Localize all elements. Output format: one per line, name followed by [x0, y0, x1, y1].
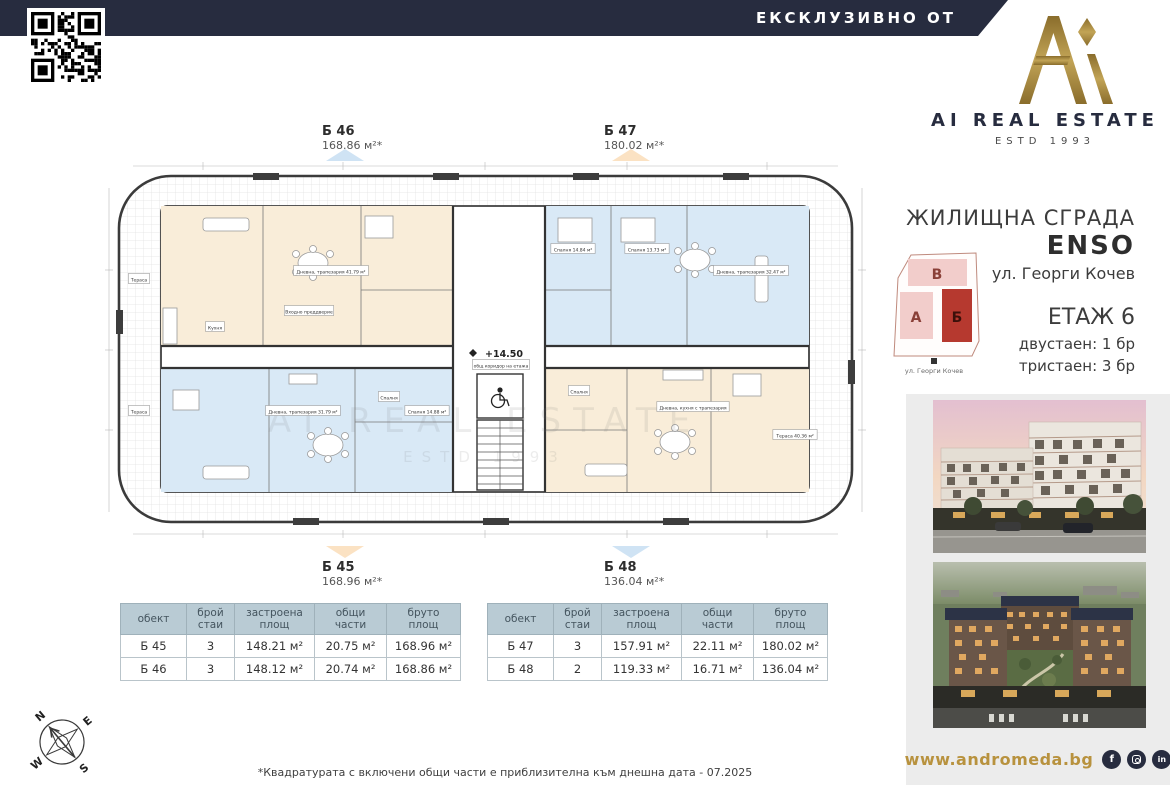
room-label: Дневна, трапезария 32.47 м² — [717, 270, 786, 276]
room-label: Дневна, трапезария 31.79 м² — [269, 410, 338, 416]
table-cell: 136.04 м² — [754, 658, 828, 681]
exclusive-banner-label: ЕКСКЛУЗИВНО ОТ — [756, 9, 956, 27]
apartment-marker-b45 — [326, 546, 364, 558]
room-label: Входно преддверие — [285, 310, 333, 316]
level-label: +14.50 — [485, 349, 523, 360]
table-header-cell: бруто площ — [387, 604, 461, 635]
table-cell: 3 — [187, 635, 235, 658]
spec-table-left: обектброй стаизастроена площобщи частибр… — [120, 603, 461, 681]
room-label: Спалня — [380, 396, 398, 402]
table-cell: 168.96 м² — [387, 635, 461, 658]
table-cell: 20.74 м² — [315, 658, 387, 681]
table-header-cell: застроена площ — [602, 604, 682, 635]
room-label: Спалня 14.84 м² — [554, 248, 593, 254]
compass-north: N — [33, 708, 48, 724]
qr-code-pattern — [31, 12, 101, 82]
apartment-label-b45: Б 45 168.96 м²* — [322, 560, 442, 588]
apartment-marker-b47 — [612, 149, 650, 161]
apartment-label-b46: Б 46 168.86 м²* — [322, 124, 442, 152]
room-label: Кухня — [208, 326, 222, 332]
table-cell: Б 47 — [488, 635, 554, 658]
apartment-marker-b46 — [326, 149, 364, 161]
qr-code — [27, 8, 105, 86]
table-cell: 2 — [554, 658, 602, 681]
apartment-area: 168.96 м²* — [322, 575, 442, 588]
table-header-cell: общи части — [315, 604, 387, 635]
spec-table-right: обектброй стаизастроена площобщи частибр… — [487, 603, 828, 681]
site-map-block-b-label: Б — [952, 310, 963, 326]
room-label: Дневна, трапезария 41.79 м² — [297, 270, 366, 276]
table-header-cell: брой стаи — [187, 604, 235, 635]
room-label: Спалня 14.88 м² — [408, 410, 447, 416]
table-cell: 20.75 м² — [315, 635, 387, 658]
brand-estd: ESTD 1993 — [930, 136, 1160, 147]
table-cell: 3 — [187, 658, 235, 681]
table-row: Б 463148.12 м²20.74 м²168.86 м² — [121, 658, 461, 681]
table-header-cell: обект — [488, 604, 554, 635]
table-cell: 148.12 м² — [235, 658, 315, 681]
apartment-id: Б 45 — [322, 560, 442, 575]
table-header-cell: бруто площ — [754, 604, 828, 635]
room-label: Спалня 13.73 м² — [628, 248, 667, 254]
exclusive-banner: ЕКСКЛУЗИВНО ОТ — [0, 0, 1008, 36]
table-cell: 16.71 м² — [682, 658, 754, 681]
table-header-cell: брой стаи — [554, 604, 602, 635]
table-cell: Б 48 — [488, 658, 554, 681]
site-map: В А Б ул. Георги Кочев — [878, 242, 988, 376]
apartment-area: 136.04 м²* — [604, 575, 724, 588]
table-row: Б 473157.91 м²22.11 м²180.02 м² — [488, 635, 828, 658]
apartment-id: Б 48 — [604, 560, 724, 575]
apartment-id: Б 47 — [604, 124, 724, 139]
compass-east: E — [81, 714, 95, 729]
facebook-icon[interactable]: f — [1102, 750, 1121, 769]
table-cell: Б 46 — [121, 658, 187, 681]
table-cell: Б 45 — [121, 635, 187, 658]
room-label: Спалня — [570, 390, 588, 396]
compass-west: W — [28, 755, 46, 773]
brochure-page: { "colors": { "navy": "#272c3f", "gold":… — [0, 0, 1170, 785]
site-map-block-v-label: В — [932, 267, 943, 283]
site-map-entrance-icon — [931, 358, 937, 364]
table-row: Б 453148.21 м²20.75 м²168.96 м² — [121, 635, 461, 658]
floor-plan: +14.50 AI REAL ESTATE EST — [103, 160, 868, 538]
room-label: Тераса — [130, 410, 148, 416]
apartment-label-b48: Б 48 136.04 м²* — [604, 560, 724, 588]
compass-icon: N E S W — [18, 698, 106, 785]
instagram-icon[interactable] — [1127, 750, 1146, 769]
table-cell: 168.86 м² — [387, 658, 461, 681]
table-cell: 157.91 м² — [602, 635, 682, 658]
table-row: Б 482119.33 м²16.71 м²136.04 м² — [488, 658, 828, 681]
apartment-id: Б 46 — [322, 124, 442, 139]
compass-south: S — [77, 761, 91, 776]
site-map-street-label: ул. Георги Кочев — [905, 367, 963, 375]
table-header-cell: общи части — [682, 604, 754, 635]
room-label: Тераса — [130, 278, 148, 284]
table-cell: 148.21 м² — [235, 635, 315, 658]
building-type-label: ЖИЛИЩНА СГРАДА — [860, 206, 1135, 230]
aerial-courtyard-render-photo — [933, 562, 1146, 728]
table-header-cell: застроена площ — [235, 604, 315, 635]
footer: www.andromeda.bg f in — [906, 750, 1170, 769]
apartment-label-b47: Б 47 180.02 м²* — [604, 124, 724, 152]
table-cell: 119.33 м² — [602, 658, 682, 681]
table-cell: 3 — [554, 635, 602, 658]
building-render-dusk-photo — [933, 400, 1146, 553]
ai-real-estate-logo-icon — [975, 4, 1125, 106]
room-label: Тераса 40.36 м² — [775, 434, 814, 440]
area-footnote: *Квадратурата с включени общи части е пр… — [150, 766, 860, 779]
apartment-marker-b48 — [612, 546, 650, 558]
website-link[interactable]: www.andromeda.bg — [905, 750, 1094, 769]
site-map-block-a-label: А — [911, 310, 922, 326]
brand-name: AI REAL ESTATE — [930, 110, 1160, 131]
svg-text:ESTD 1993: ESTD 1993 — [403, 448, 567, 466]
room-label: общ коридор на етажа — [474, 364, 529, 370]
table-cell: 180.02 м² — [754, 635, 828, 658]
table-header-cell: обект — [121, 604, 187, 635]
linkedin-icon[interactable]: in — [1152, 750, 1170, 769]
table-cell: 22.11 м² — [682, 635, 754, 658]
room-label: Дневна, кухня с трапезария — [659, 406, 726, 412]
